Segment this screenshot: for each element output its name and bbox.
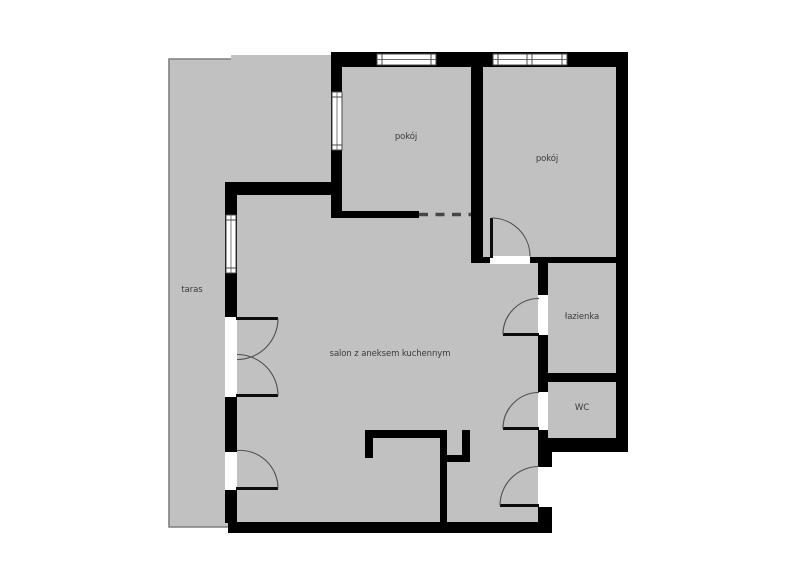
- wall-terrace-step: [225, 182, 342, 195]
- wall-lazienka-wc-divider: [538, 373, 616, 382]
- kitchen-wall-right-stub: [462, 430, 470, 462]
- wall-east-exterior: [616, 52, 628, 452]
- window-top-left: [377, 54, 436, 65]
- window-top-right: [493, 54, 567, 65]
- label-lazienka: łazienka: [565, 312, 599, 322]
- label-pokoj-top: pokój: [395, 131, 417, 142]
- label-wc: WC: [575, 403, 589, 413]
- wall-between-pokoje: [471, 52, 483, 263]
- kitchen-wall-left-stub: [365, 430, 373, 458]
- door-opening: [538, 295, 548, 335]
- kitchen-wall-vertical: [440, 430, 447, 523]
- door-opening: [225, 452, 237, 490]
- label-pokoj-right: pokój: [536, 153, 558, 164]
- label-salon: salon z aneksem kuchennym: [330, 349, 451, 359]
- door-opening: [538, 392, 548, 430]
- floor-plan: taras pokój pokój salon z aneksem kuchen…: [0, 0, 800, 586]
- kitchen-wall-top: [365, 430, 443, 438]
- wall-south-exterior: [228, 522, 552, 533]
- window-taras-west: [226, 215, 236, 273]
- floor-plan-svg: taras pokój pokój salon z aneksem kuchen…: [0, 0, 800, 586]
- window-pokoj-west: [332, 92, 342, 150]
- door-opening: [225, 317, 237, 397]
- wall-wc-south-exterior: [538, 438, 628, 452]
- wall-pokoj-top-south: [333, 211, 419, 218]
- door-opening: [490, 256, 530, 264]
- door-opening: [538, 467, 552, 507]
- label-taras: taras: [181, 285, 203, 295]
